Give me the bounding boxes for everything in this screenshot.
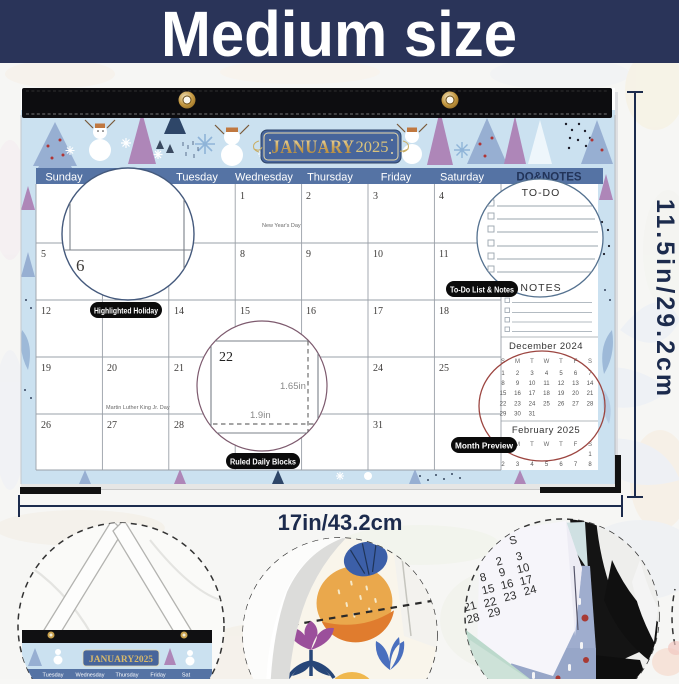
svg-text:10: 10 <box>529 381 536 387</box>
svg-text:19: 19 <box>558 391 565 397</box>
svg-text:11: 11 <box>439 249 449 260</box>
svg-text:Martin Luther King Jr. Day: Martin Luther King Jr. Day <box>106 405 170 411</box>
svg-text:22: 22 <box>219 350 233 365</box>
svg-text:Medium size: Medium size <box>161 0 517 70</box>
svg-text:25: 25 <box>543 402 550 408</box>
svg-text:27: 27 <box>572 402 579 408</box>
svg-text:W: W <box>544 359 550 365</box>
svg-text:T: T <box>530 359 534 365</box>
svg-text:TO-DO: TO-DO <box>522 187 561 199</box>
svg-text:New Year's Day: New Year's Day <box>262 223 301 229</box>
svg-text:1: 1 <box>240 191 245 202</box>
svg-text:9: 9 <box>306 249 311 260</box>
svg-text:14: 14 <box>587 381 594 387</box>
svg-text:T: T <box>530 442 534 448</box>
svg-text:Tuesday: Tuesday <box>43 673 64 679</box>
svg-text:Friday: Friday <box>381 172 412 184</box>
svg-text:21: 21 <box>174 363 184 374</box>
svg-text:JANUARY2025: JANUARY2025 <box>89 655 153 665</box>
svg-text:15: 15 <box>240 306 250 317</box>
svg-text:4: 4 <box>439 191 444 202</box>
svg-text:Sat: Sat <box>182 673 191 679</box>
svg-text:Saturday: Saturday <box>440 172 485 184</box>
svg-text:15: 15 <box>500 391 507 397</box>
svg-text:25: 25 <box>439 363 449 374</box>
svg-text:Wednesday: Wednesday <box>235 172 293 184</box>
svg-text:18: 18 <box>543 391 550 397</box>
svg-text:Month Preview: Month Preview <box>455 441 513 451</box>
svg-text:8: 8 <box>240 249 245 260</box>
svg-text:T: T <box>559 359 563 365</box>
svg-text:20: 20 <box>107 363 117 374</box>
svg-text:T: T <box>559 442 563 448</box>
svg-text:14: 14 <box>174 306 184 317</box>
svg-text:10: 10 <box>373 249 383 260</box>
svg-text:Tuesday: Tuesday <box>176 172 218 184</box>
svg-text:12: 12 <box>558 381 565 387</box>
svg-text:27: 27 <box>107 420 117 431</box>
svg-text:12: 12 <box>41 306 51 317</box>
svg-text:20: 20 <box>572 391 579 397</box>
svg-text:2025: 2025 <box>356 139 389 156</box>
svg-text:13: 13 <box>572 381 579 387</box>
svg-text:28: 28 <box>587 402 594 408</box>
svg-text:F: F <box>574 442 578 448</box>
svg-text:19: 19 <box>41 363 51 374</box>
svg-text:17in/43.2cm: 17in/43.2cm <box>278 510 403 535</box>
svg-text:Sunday: Sunday <box>45 172 83 184</box>
svg-text:2: 2 <box>306 191 311 202</box>
svg-text:21: 21 <box>587 391 594 397</box>
svg-text:1.65in: 1.65in <box>280 381 306 392</box>
svg-text:Highlighted Holiday: Highlighted Holiday <box>94 306 158 316</box>
svg-text:5: 5 <box>41 249 46 260</box>
svg-text:22: 22 <box>500 402 507 408</box>
svg-text:JANUARY: JANUARY <box>272 137 355 158</box>
svg-text:Friday: Friday <box>150 673 166 679</box>
svg-text:16: 16 <box>514 391 521 397</box>
svg-text:NOTES: NOTES <box>520 282 561 294</box>
svg-text:December 2024: December 2024 <box>509 341 583 352</box>
svg-text:Thursday: Thursday <box>307 172 353 184</box>
svg-text:February 2025: February 2025 <box>512 425 580 436</box>
svg-text:S: S <box>588 359 592 365</box>
svg-text:1.9in: 1.9in <box>250 410 271 421</box>
svg-text:24: 24 <box>529 402 536 408</box>
svg-text:Ruled Daily Blocks: Ruled Daily Blocks <box>230 457 296 467</box>
svg-text:16: 16 <box>306 306 316 317</box>
svg-text:30: 30 <box>514 412 521 418</box>
svg-text:M: M <box>515 359 520 365</box>
svg-text:31: 31 <box>529 412 536 418</box>
svg-text:26: 26 <box>558 402 565 408</box>
svg-text:24: 24 <box>373 363 383 374</box>
svg-text:3: 3 <box>373 191 378 202</box>
svg-text:Wednesday: Wednesday <box>76 673 105 679</box>
svg-text:23: 23 <box>514 402 521 408</box>
svg-text:26: 26 <box>41 420 51 431</box>
svg-text:Thursday: Thursday <box>116 673 139 679</box>
svg-text:11.5in/29.2cm: 11.5in/29.2cm <box>651 199 679 399</box>
svg-text:29: 29 <box>500 412 507 418</box>
svg-text:18: 18 <box>439 306 449 317</box>
svg-text:17: 17 <box>373 306 383 317</box>
svg-text:11: 11 <box>543 381 550 387</box>
svg-text:17: 17 <box>529 391 536 397</box>
svg-text:6: 6 <box>76 256 85 275</box>
svg-text:31: 31 <box>373 420 383 431</box>
svg-text:To-Do List & Notes: To-Do List & Notes <box>450 285 514 295</box>
svg-text:W: W <box>544 442 550 448</box>
svg-text:28: 28 <box>174 420 184 431</box>
